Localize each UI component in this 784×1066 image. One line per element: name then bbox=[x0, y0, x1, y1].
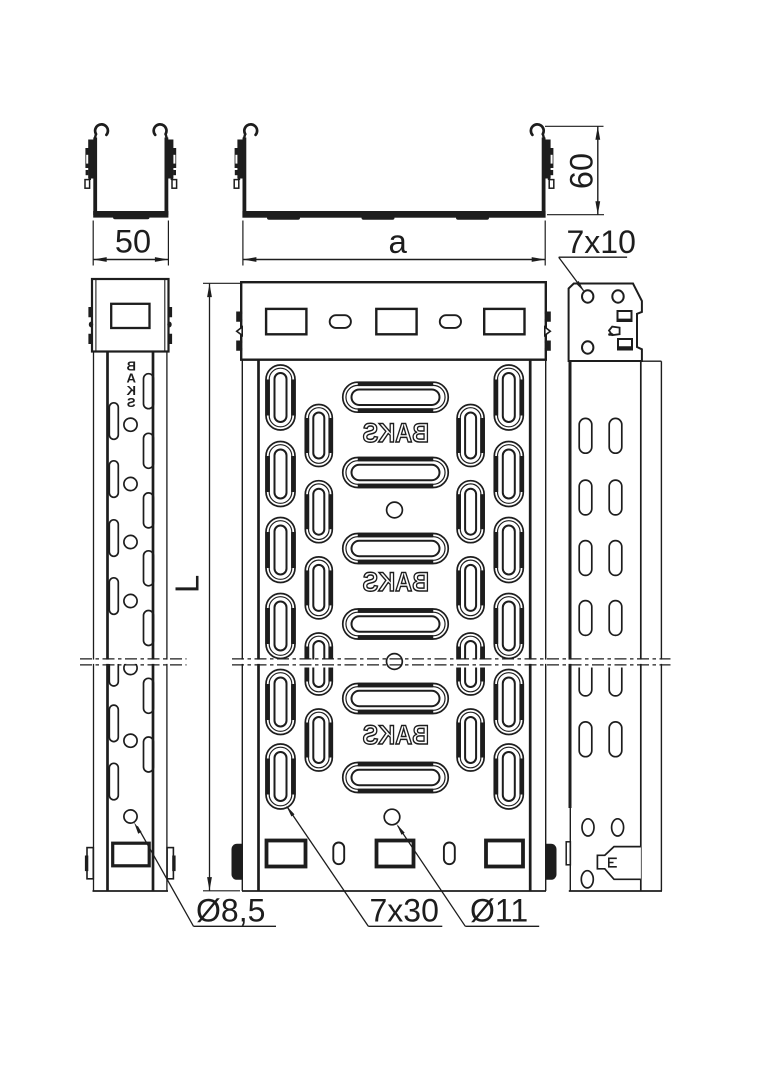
svg-text:L: L bbox=[169, 575, 206, 593]
svg-text:Ø8,5: Ø8,5 bbox=[196, 893, 265, 929]
svg-text:BAKS: BAKS bbox=[363, 720, 430, 750]
svg-text:S: S bbox=[127, 395, 136, 410]
svg-text:50: 50 bbox=[115, 224, 151, 260]
svg-text:a: a bbox=[389, 223, 408, 260]
svg-text:BAKS: BAKS bbox=[363, 567, 430, 597]
svg-text:7x10: 7x10 bbox=[567, 224, 636, 260]
svg-text:7x30: 7x30 bbox=[370, 893, 439, 929]
svg-text:60: 60 bbox=[564, 153, 600, 189]
svg-text:Ø11: Ø11 bbox=[470, 893, 528, 929]
svg-text:BAKS: BAKS bbox=[363, 418, 430, 448]
